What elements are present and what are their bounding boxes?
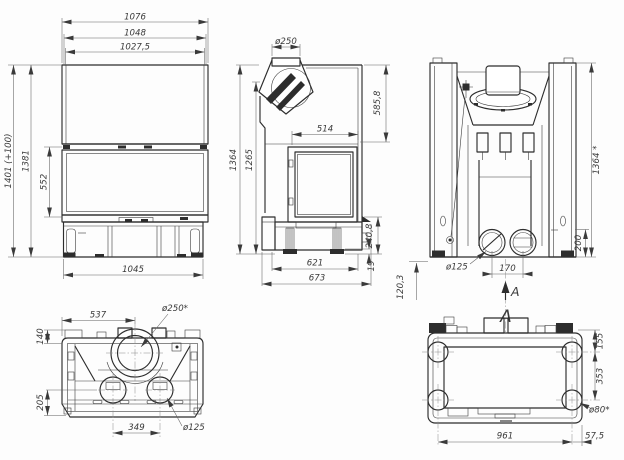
dim-top-outlet-spacing: 349 [128,423,144,433]
dim-bottom-foot-diameter: ø80* [588,406,610,416]
damper-control-fitting [463,84,470,91]
section-arrow [502,281,510,293]
dim-side-foot-height: 19 [367,261,377,272]
fireplace-dimension-drawing: 1076 1048 1027,5 1401 (+100) 1381 552 10… [0,0,624,460]
front-base [64,222,204,257]
top-view: 537 ø250* 140 205 349 ø125 [36,304,205,437]
rear-view: 1364 * 200 ø125 170 120,3 A [396,58,602,332]
dim-side-total-depth: 673 [309,274,325,284]
dim-rear-outlet-diameter: ø125 [445,263,468,273]
dim-front-width-mid: 1048 [124,29,146,39]
bottom-view-a: A 155 353 ø80* 961 [422,307,610,446]
dim-bottom-edge-to-foot: 155 [596,333,606,349]
front-glass-door [62,150,208,215]
flue-collar [486,66,520,95]
dim-rear-floor-offset: 120,3 [396,275,406,300]
rear-right-panel [549,63,576,257]
view-a-label: A [499,307,512,327]
rear-left-panel [430,63,457,257]
dim-top-front-offset: 140 [36,328,46,345]
dim-front-base-width: 1045 [122,265,144,275]
dim-side-top-to-door: 585,8 [373,90,383,115]
dim-bottom-foot-spacing-width: 961 [497,432,513,442]
dim-front-height-inner: 1381 [22,150,32,172]
dim-top-outlet-diameter: ø125 [182,423,205,433]
top-view-body [62,338,203,417]
dim-rear-outlet-spacing: 170 [499,264,516,274]
front-view: 1076 1048 1027,5 1401 (+100) 1381 552 10… [4,13,208,280]
dim-side-base-depth: 621 [307,259,323,269]
dim-bottom-foot-edge-offset: 57,5 [585,432,604,442]
dim-side-height-front: 1265 [245,149,255,171]
dim-side-base-height: 240,8 [365,223,375,248]
dim-rear-outlet-height: 200 [574,234,584,251]
side-glass [295,152,353,217]
section-arrow-label: A [510,284,520,299]
technical-drawing-sheet: 1076 1048 1027,5 1401 (+100) 1381 552 10… [0,0,624,460]
dim-front-door-height: 552 [40,174,50,190]
dim-top-rear-offset: 205 [36,394,46,410]
dim-rear-height-total: 1364 * [592,145,602,175]
dim-front-width-inner: 1027,5 [120,43,150,53]
dim-bottom-foot-spacing-depth: 353 [596,368,606,384]
dim-side-flue-diameter: ø250 [274,37,297,47]
flue-outlet-side [272,58,300,66]
dim-front-height-total: 1401 (+100) [4,134,14,189]
side-door-frame [288,147,357,222]
damper-control-cable [451,98,465,236]
dim-front-width-top: 1076 [124,13,146,23]
dim-top-flue-diameter: ø250* [161,304,189,314]
front-upper-panel [62,65,208,144]
dim-top-flue-center-offset: 537 [90,311,107,321]
dim-side-height-total: 1364 [229,149,239,171]
dim-side-door-depth: 514 [317,125,333,135]
side-view: ø250 514 585,8 1364 1265 240,8 19 621 67… [229,37,390,286]
